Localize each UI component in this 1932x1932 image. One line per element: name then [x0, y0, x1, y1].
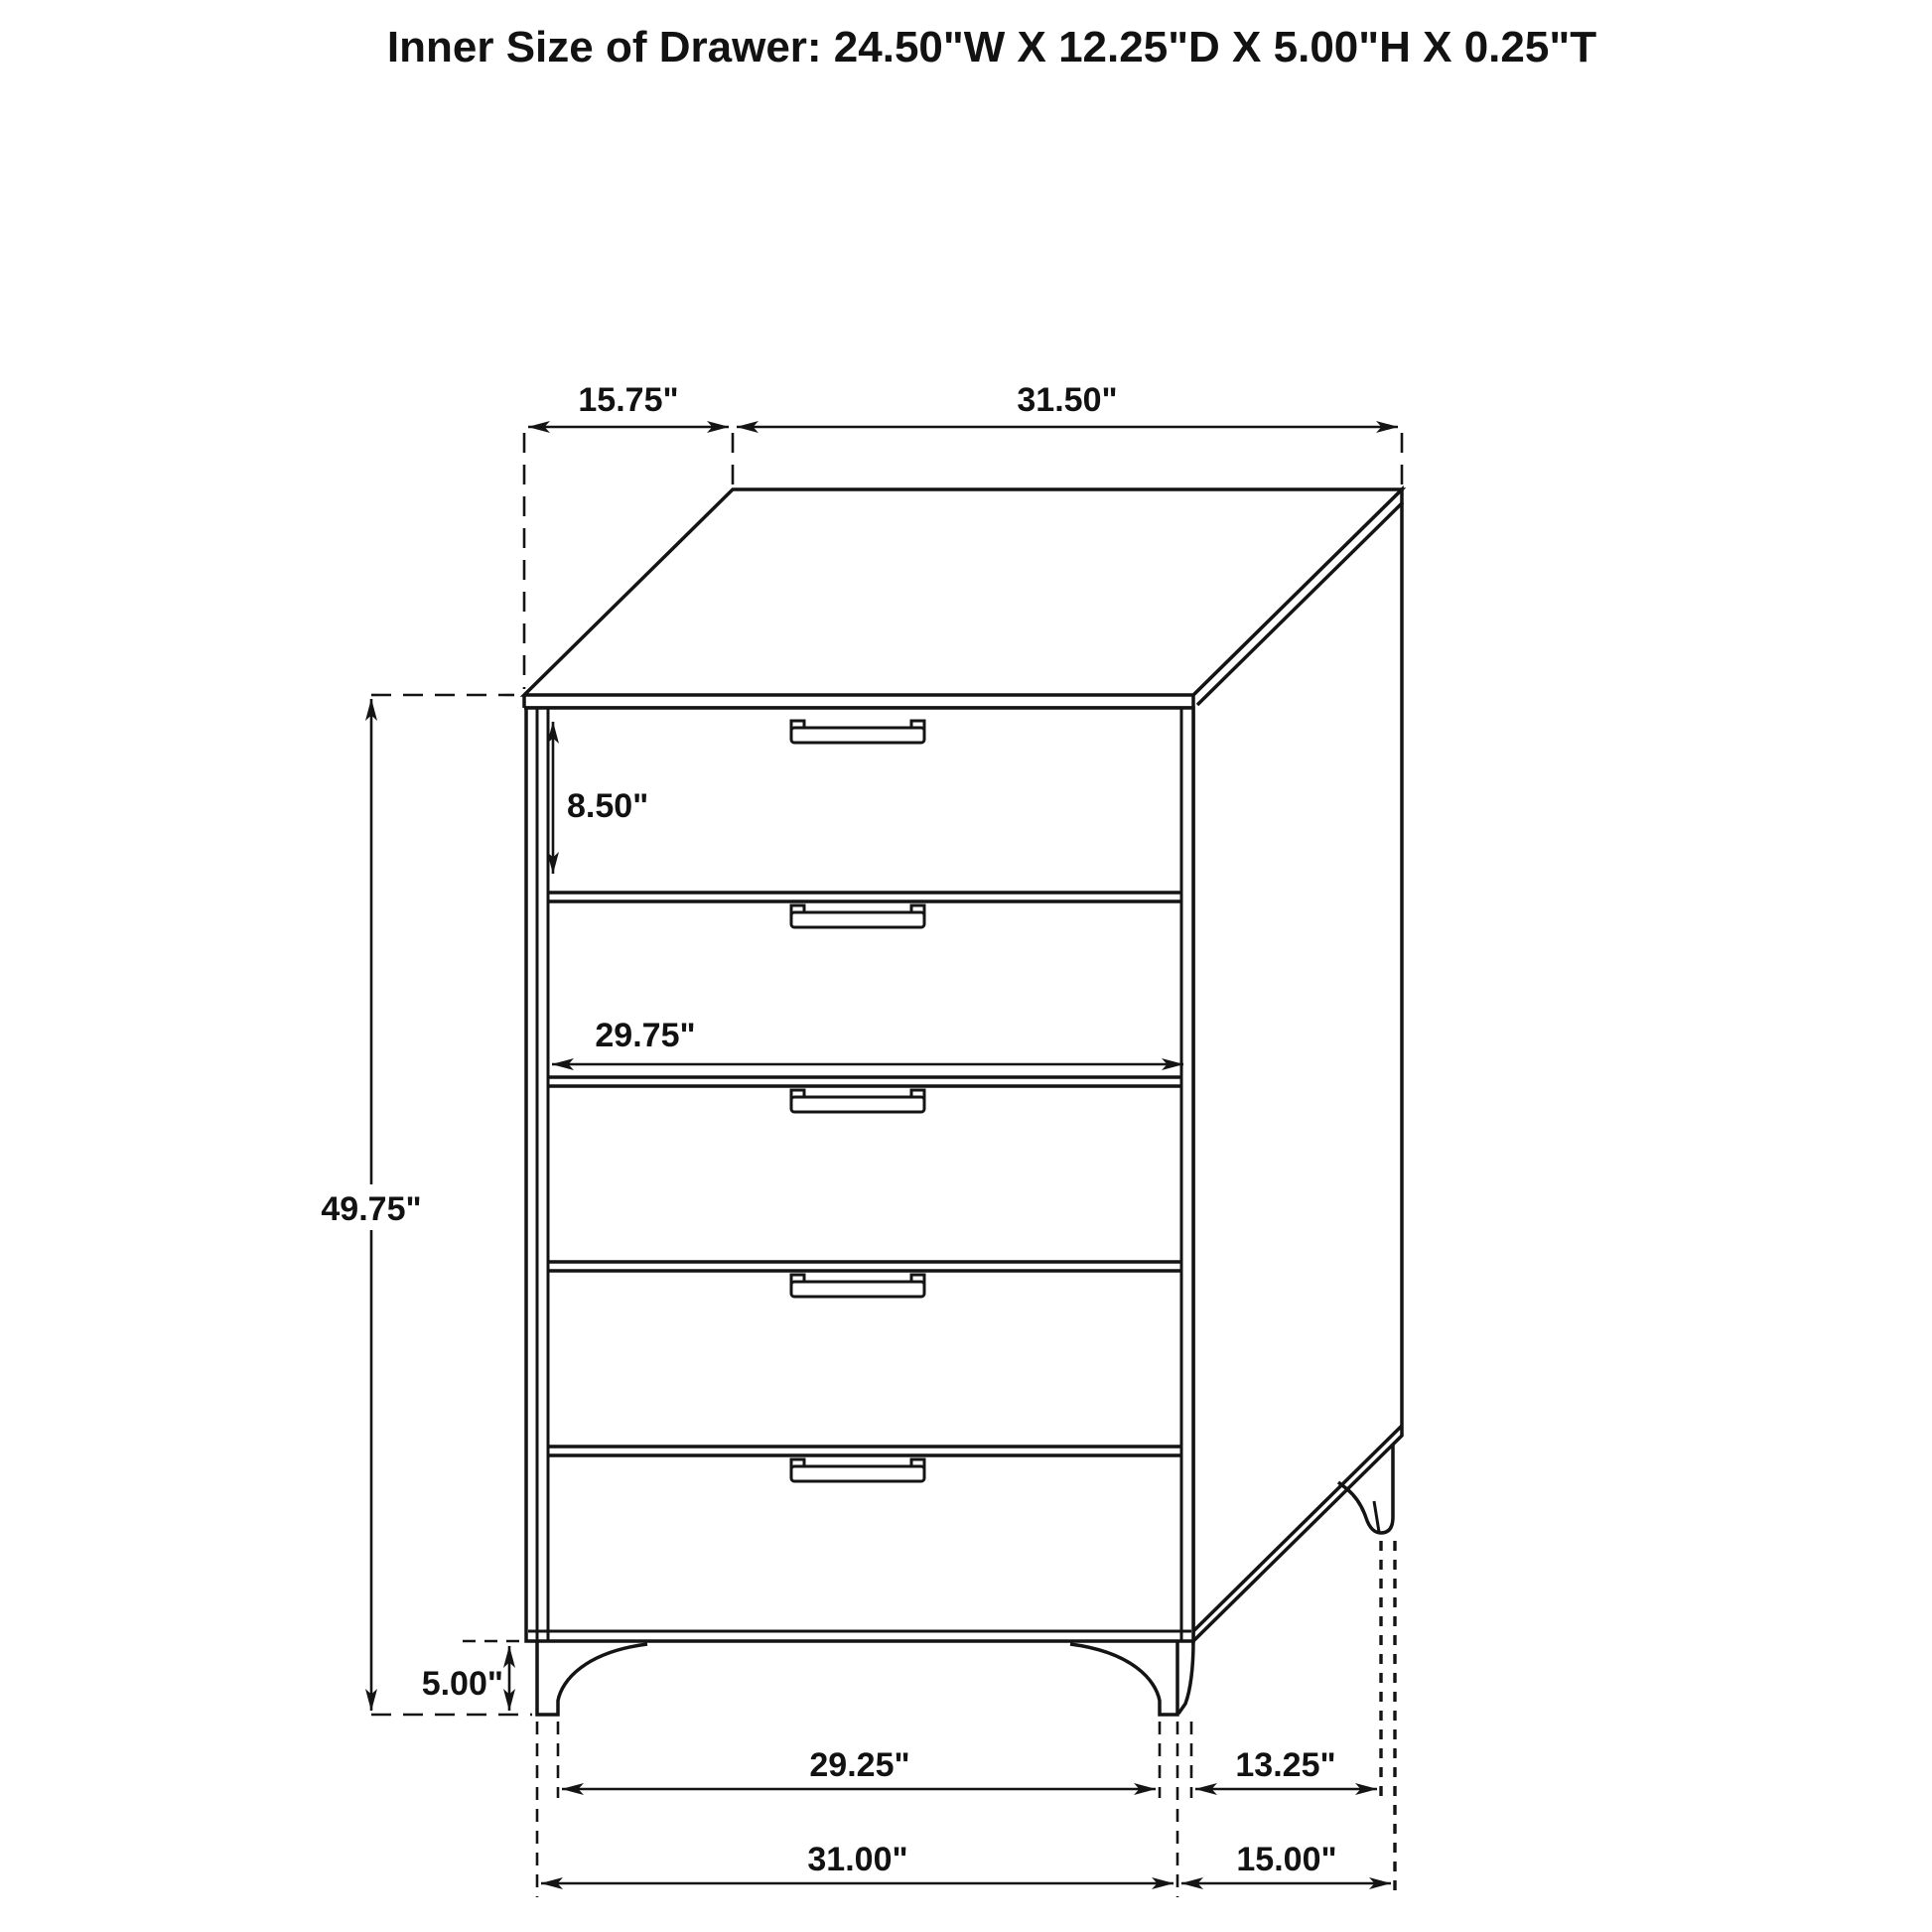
dim-label-side-leg-span: 13.25" [1235, 1746, 1335, 1784]
dim-label-top-width: 31.50" [1017, 381, 1117, 419]
handle-bar [791, 912, 924, 927]
page-title: Inner Size of Drawer: 24.50"W X 12.25"D … [387, 23, 1596, 71]
diagram-page: Inner Size of Drawer: 24.50"W X 12.25"D … [0, 0, 1932, 1932]
dim-label-overall-height: 49.75" [321, 1190, 421, 1228]
leg-front-right-side-edge [1178, 1641, 1193, 1714]
dim-label-drawer-front-width: 29.75" [595, 1017, 695, 1054]
handle-bar [791, 1282, 924, 1297]
dim-label-front-leg-span: 29.25" [809, 1746, 909, 1784]
carcass-front [526, 708, 1193, 1641]
dim-label-leg-height: 5.00" [422, 1665, 503, 1703]
dim-label-drawer-height: 8.50" [567, 787, 648, 825]
leg-front-right [1070, 1641, 1177, 1715]
leg-front-left [537, 1641, 647, 1715]
dim-overall-width: 31.00" [541, 1841, 1173, 1883]
dim-side-leg-span: 13.25" [1195, 1746, 1377, 1789]
dim-overall-height: 49.75" [310, 695, 532, 1715]
chest-structure [524, 489, 1403, 1715]
carcass-outline [526, 708, 1193, 1641]
handle-bar [791, 728, 924, 743]
handle-bar [791, 1097, 924, 1112]
dim-label-overall-width: 31.00" [807, 1841, 907, 1878]
dim-label-overall-depth: 15.00" [1236, 1841, 1336, 1878]
dim-overall-depth: 15.00" [1181, 1841, 1391, 1883]
leg-back-right-detail [1374, 1501, 1379, 1532]
dim-label-top-depth: 15.75" [578, 381, 678, 419]
dim-front-leg-span: 29.25" [562, 1746, 1156, 1789]
dim-top-width: 31.50" [737, 381, 1402, 484]
handle-bar [791, 1466, 924, 1481]
technical-drawing: Inner Size of Drawer: 24.50"W X 12.25"D … [0, 0, 1932, 1932]
dim-leg-height: 5.00" [422, 1641, 532, 1711]
